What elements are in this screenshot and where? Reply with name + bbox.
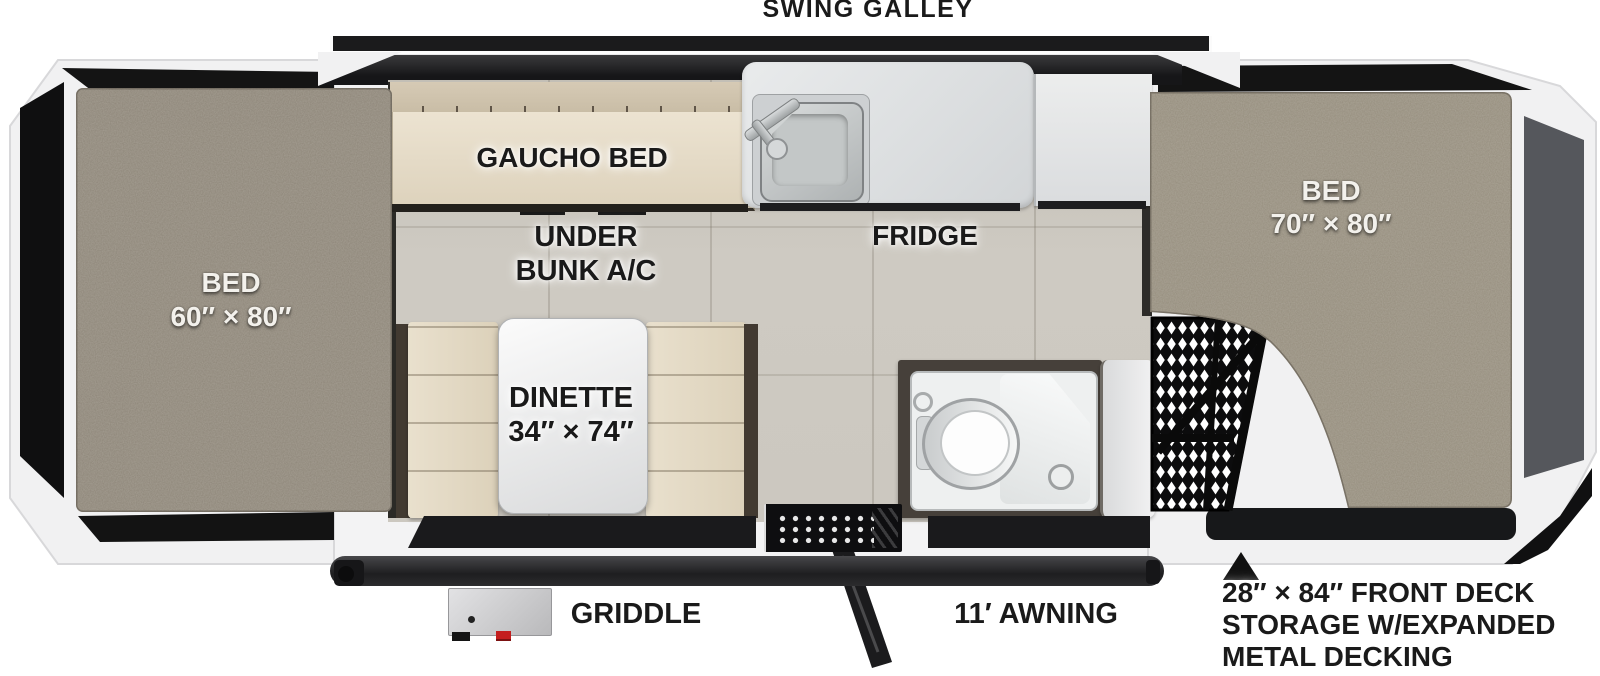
front-bed-label-line1: BED xyxy=(1270,174,1391,207)
front-deck-note-line3: METAL DECKING xyxy=(1222,641,1555,673)
griddle xyxy=(448,588,552,636)
page-title: SWING GALLEY xyxy=(762,0,973,24)
awning-rail xyxy=(330,556,1164,586)
fridge-label: FRIDGE xyxy=(872,220,978,252)
griddle-valve xyxy=(496,631,511,641)
awning-label: 11′ AWNING xyxy=(954,598,1118,631)
under-bunk-ac-line2: BUNK A/C xyxy=(516,254,657,288)
front-bed-label-line2: 70″ × 80″ xyxy=(1270,207,1391,240)
rear-bed-label-line1: BED xyxy=(170,266,291,300)
front-deck-note-line1: 28″ × 84″ FRONT DECK xyxy=(1222,577,1555,609)
under-bunk-ac-label: UNDER BUNK A/C xyxy=(516,220,657,288)
rear-bed-label: BED 60″ × 80″ xyxy=(170,266,291,334)
griddle-label: GRIDDLE xyxy=(571,598,702,631)
griddle-foot xyxy=(452,632,470,641)
gaucho-bed-label: GAUCHO BED xyxy=(476,142,667,174)
front-deck-pointer-icon xyxy=(1223,552,1259,580)
dinette-label: DINETTE 34″ × 74″ xyxy=(508,381,633,449)
dinette-label-line1: DINETTE xyxy=(508,381,633,415)
expanded-metal-deck-icon xyxy=(1152,318,1266,510)
under-bunk-ac-line1: UNDER xyxy=(516,220,657,254)
front-deck-note: 28″ × 84″ FRONT DECK STORAGE W/EXPANDED … xyxy=(1222,577,1555,673)
awning-rail-roller xyxy=(338,566,354,582)
front-deck-note-line2: STORAGE W/EXPANDED xyxy=(1222,609,1555,641)
floorplan-canvas: SWING GALLEY BED 60″ × 80″ BED 70″ × 80″… xyxy=(0,0,1600,676)
rear-bed-label-line2: 60″ × 80″ xyxy=(170,300,291,334)
dinette-label-line2: 34″ × 74″ xyxy=(508,415,633,449)
griddle-knob xyxy=(468,616,475,623)
front-bed-label: BED 70″ × 80″ xyxy=(1270,174,1391,240)
awning-rail-bracket-right xyxy=(1146,560,1160,584)
